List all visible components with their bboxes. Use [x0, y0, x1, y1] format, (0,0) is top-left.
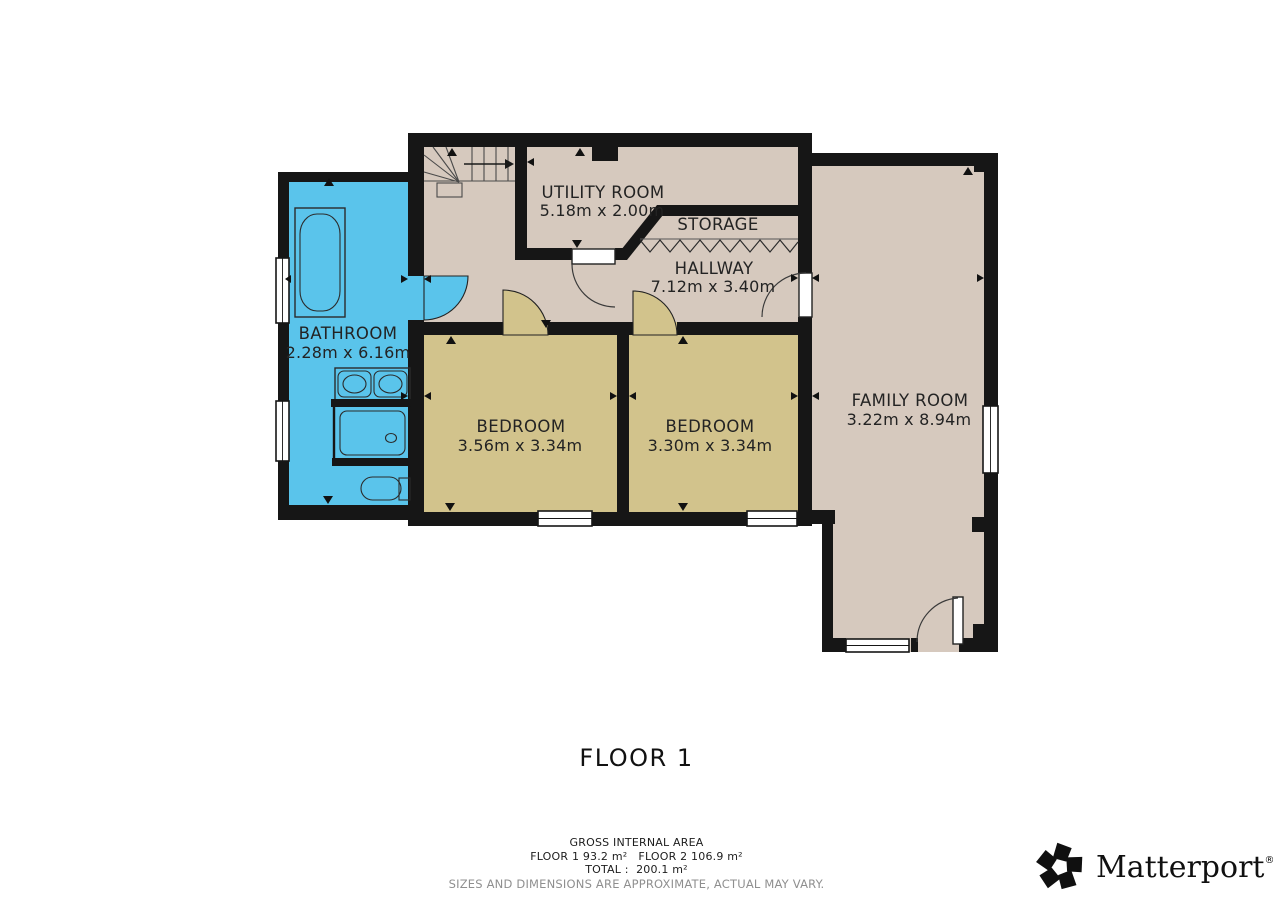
floor-plan-page: BATHROOM 2.28m x 6.16m UTILITY ROOM 5.18… [0, 0, 1273, 900]
family-room-dims: 3.22m x 8.94m [847, 410, 972, 429]
bedroom2-window [747, 511, 797, 526]
bathroom-window-upper [276, 258, 289, 323]
family-room-bottom-window [846, 639, 909, 652]
bedroom1-window [538, 511, 592, 526]
family-room-side-window [983, 406, 998, 473]
utility-room-dims: 5.18m x 2.00m [540, 201, 665, 220]
bedroom2-label: BEDROOM [666, 417, 755, 436]
hallway-dims: 7.12m x 3.40m [651, 277, 776, 296]
family-room-label: FAMILY ROOM [852, 391, 969, 410]
bathroom-label: BATHROOM [299, 324, 398, 343]
floor-title: FLOOR 1 [0, 744, 1273, 772]
matterport-wordmark: Matterport® [1096, 850, 1273, 885]
bedroom1-dims: 3.56m x 3.34m [458, 436, 583, 455]
shower-partition-wall [332, 458, 412, 466]
bathroom-window-lower [276, 401, 289, 461]
hallway-label: HALLWAY [675, 259, 754, 278]
matterport-pinwheel-icon [1033, 839, 1087, 895]
registered-mark: ® [1264, 855, 1273, 866]
storage-label: STORAGE [677, 215, 758, 234]
matterport-logo: Matterport® [1033, 839, 1273, 895]
bedroom1-label: BEDROOM [477, 417, 566, 436]
bathroom-dims: 2.28m x 6.16m [286, 343, 411, 362]
bedroom2-dims: 3.30m x 3.34m [648, 436, 773, 455]
utility-room-label: UTILITY ROOM [542, 183, 665, 202]
